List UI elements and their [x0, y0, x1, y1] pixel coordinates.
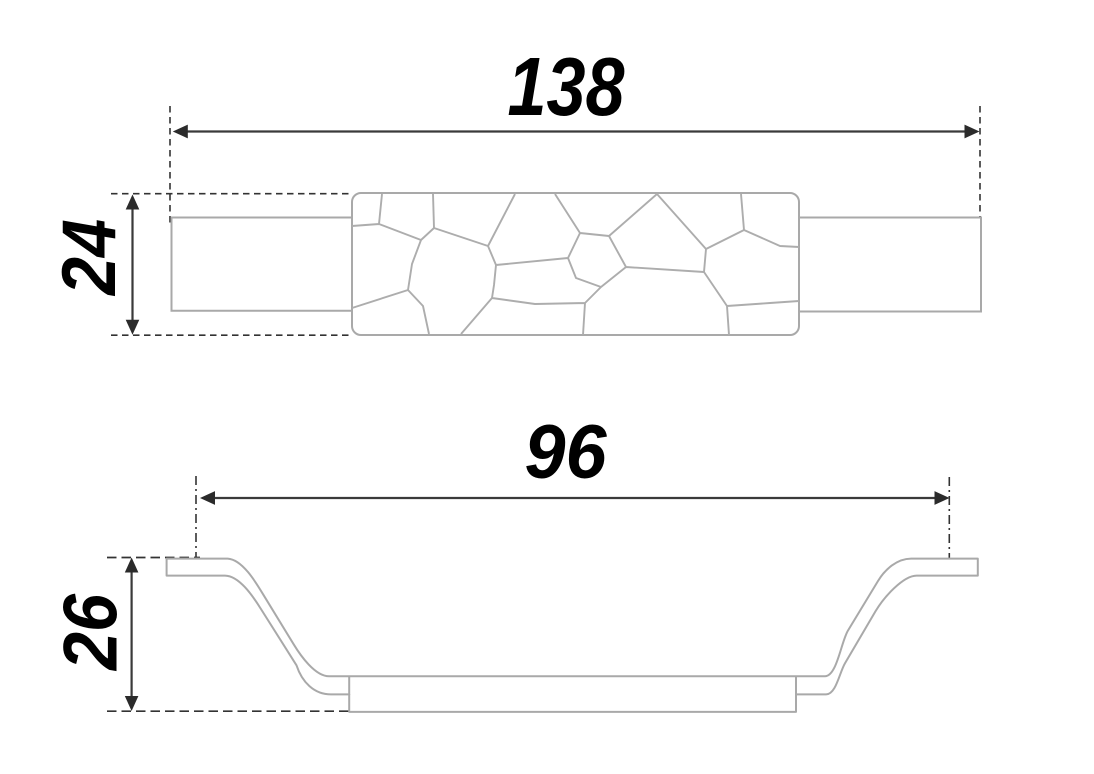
svg-text:96: 96	[524, 409, 607, 494]
svg-text:26: 26	[49, 593, 133, 672]
svg-text:138: 138	[507, 40, 624, 133]
svg-text:24: 24	[48, 219, 132, 297]
